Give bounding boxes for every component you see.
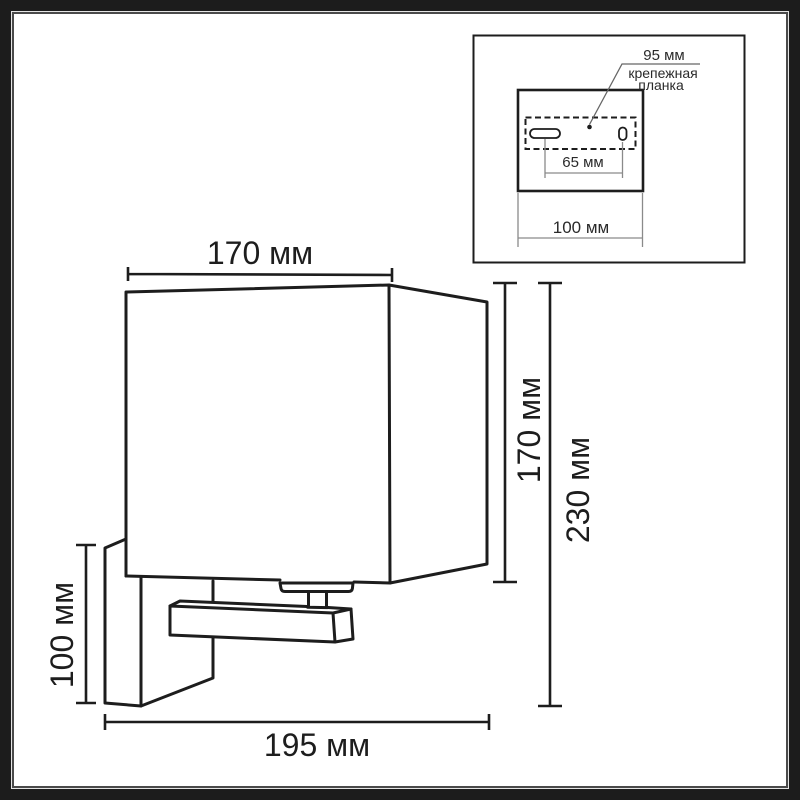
inset-label-bracket-name-2: планка bbox=[638, 77, 684, 93]
mounting-inset-panel: 95 мм крепежная планка 65 мм 100 мм bbox=[474, 36, 745, 263]
inset-label-plate-width: 100 мм bbox=[553, 218, 609, 237]
sconce-technical-drawing: 170 мм 170 мм 230 мм 100 мм 195 мм bbox=[0, 0, 800, 800]
lamp-holder bbox=[280, 583, 353, 608]
shade-right-face bbox=[389, 285, 487, 583]
inset-center-dot bbox=[587, 125, 592, 130]
shade-front-face bbox=[126, 285, 390, 583]
inset-label-bracket-width: 95 мм bbox=[643, 47, 684, 64]
dim-label-shade-width: 170 мм bbox=[207, 235, 313, 271]
dim-label-total-depth: 195 мм bbox=[264, 727, 370, 763]
arm-end-face bbox=[335, 609, 353, 642]
dimension-shade-width: 170 мм bbox=[128, 235, 392, 282]
holder-stem bbox=[308, 592, 328, 608]
plate-front-face bbox=[105, 539, 141, 706]
product-drawing-page: 170 мм 170 мм 230 мм 100 мм 195 мм bbox=[0, 0, 800, 800]
dim-label-plate-height: 100 мм bbox=[44, 582, 80, 688]
dim-label-total-height: 230 мм bbox=[560, 437, 596, 543]
dim-line-total-height bbox=[538, 283, 562, 706]
wall-plate bbox=[105, 539, 213, 706]
shade-cube bbox=[126, 285, 487, 583]
arm-front-face bbox=[170, 606, 335, 642]
plate-side-face bbox=[141, 581, 213, 706]
inset-slot-left bbox=[530, 129, 560, 138]
dim-label-shade-height: 170 мм bbox=[511, 377, 547, 483]
inset-label-hole-spacing: 65 мм bbox=[562, 154, 603, 171]
dimension-shade-height: 170 мм bbox=[493, 283, 547, 582]
dimension-total-depth: 195 мм bbox=[105, 714, 489, 763]
holder-disc bbox=[280, 583, 353, 592]
dimension-total-height: 230 мм bbox=[538, 283, 596, 706]
dimension-plate-height: 100 мм bbox=[44, 545, 96, 703]
inset-hole-right bbox=[619, 128, 627, 141]
